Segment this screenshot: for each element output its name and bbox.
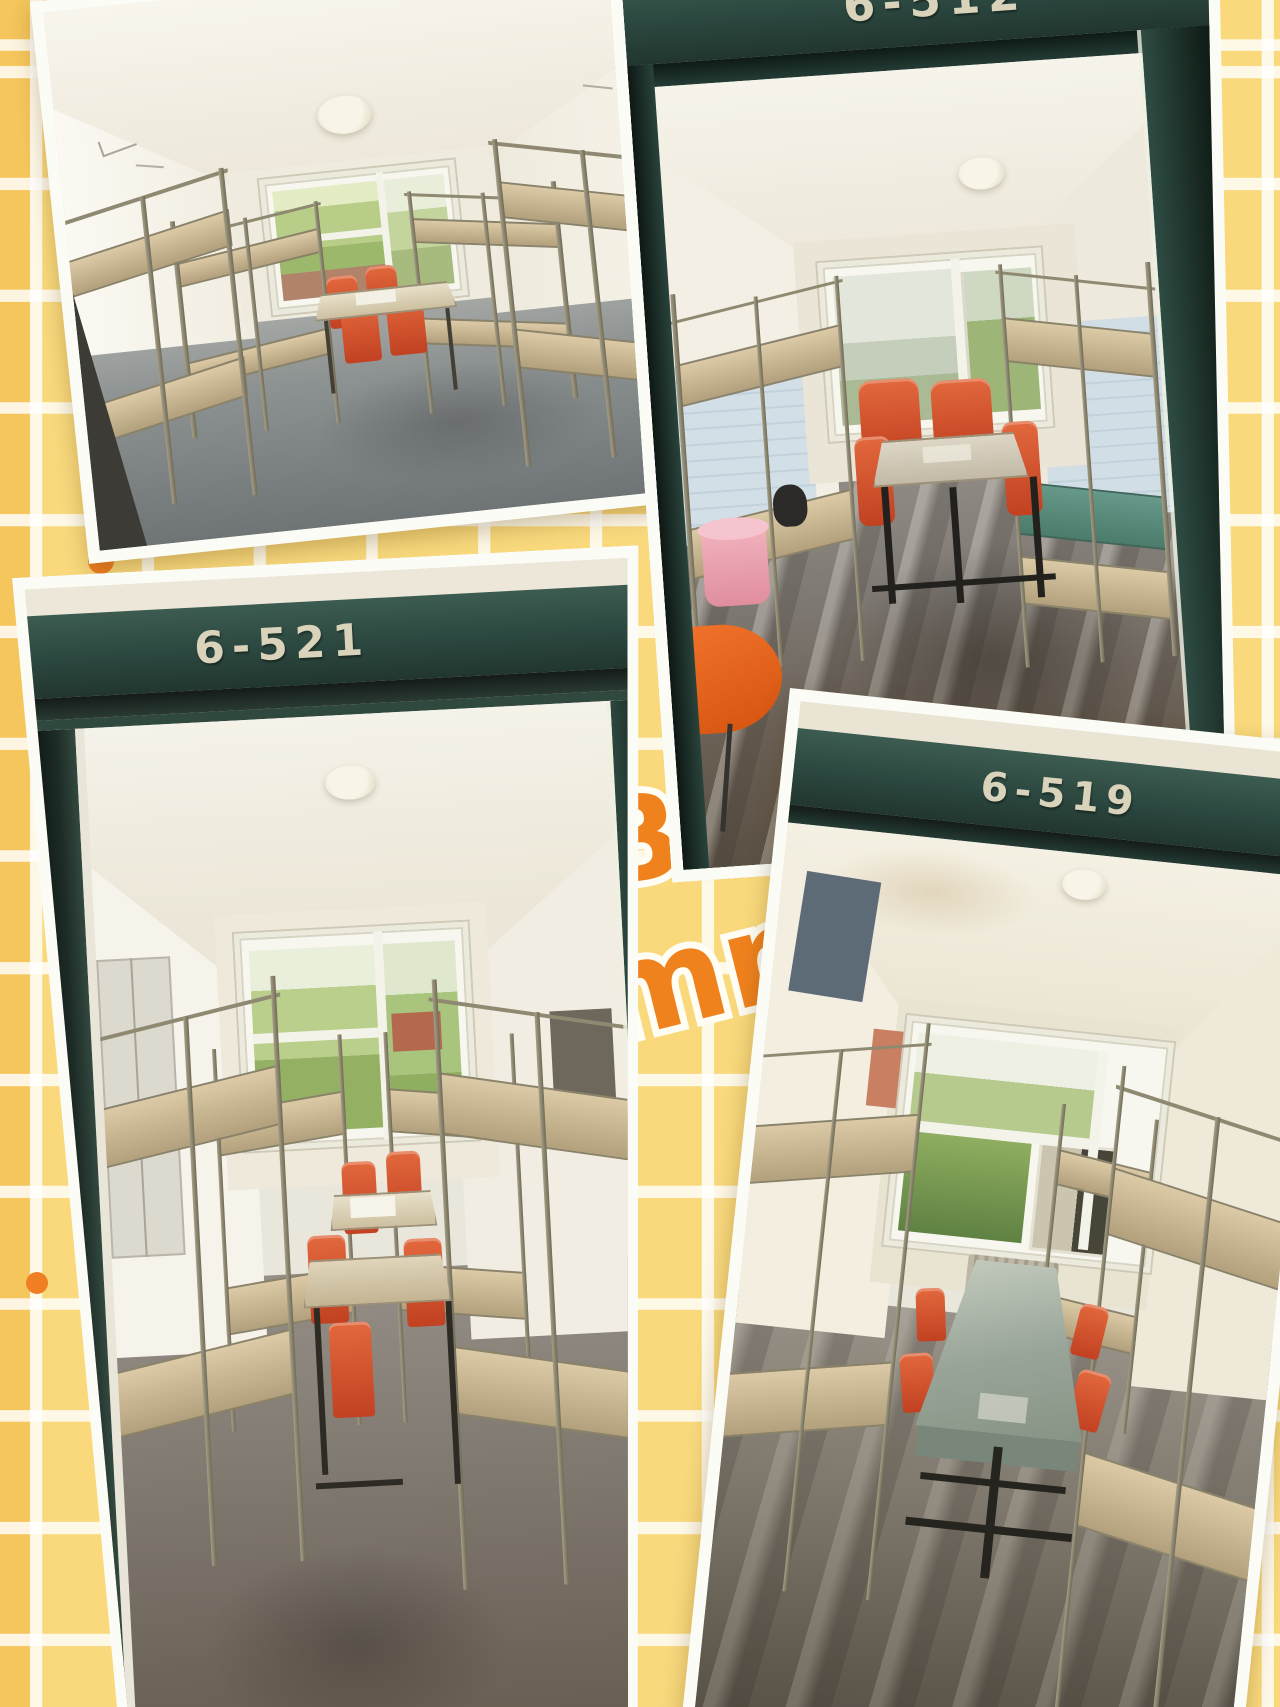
table-smudge bbox=[922, 444, 971, 464]
photo-1-scene bbox=[43, 0, 692, 551]
dorm-room-photo-top-left bbox=[30, 0, 706, 564]
bunk-post bbox=[697, 1023, 761, 1583]
room-number: 6-521 bbox=[193, 618, 371, 671]
table-leg-post bbox=[980, 1447, 1003, 1579]
room-number: 6-519 bbox=[979, 766, 1142, 822]
bunk-rail bbox=[1116, 1084, 1280, 1152]
table-leg bbox=[445, 308, 458, 390]
chair bbox=[329, 1321, 375, 1419]
bench-foot-bar bbox=[872, 573, 1056, 592]
table-and-chairs bbox=[310, 253, 468, 419]
wire-hanger-mark bbox=[136, 153, 165, 169]
backpack bbox=[772, 483, 809, 527]
photo-3-scene: 6-521 bbox=[25, 557, 705, 1707]
chair bbox=[915, 1288, 946, 1342]
desk-leg bbox=[446, 1301, 462, 1484]
table-smudge bbox=[978, 1392, 1028, 1423]
bench-and-table bbox=[850, 368, 1066, 614]
collage-canvas: B B mm mm bbox=[0, 0, 1280, 1707]
bunk-board-top bbox=[1104, 1167, 1280, 1296]
photo-4-scene: 6-519 bbox=[686, 701, 1280, 1707]
wire-hanger-mark bbox=[583, 72, 614, 89]
desk-foot-bar bbox=[316, 1479, 402, 1490]
bunk-bed-left bbox=[666, 275, 869, 681]
decor-dot-lower-left bbox=[26, 1272, 48, 1294]
dorm-room-photo-bottom-left: 6-521 bbox=[12, 545, 718, 1707]
room-number: 6-512 bbox=[806, 0, 1028, 31]
long-table-and-chairs bbox=[891, 1254, 1107, 1600]
near-desk-top bbox=[301, 1253, 452, 1309]
far-desk-paper bbox=[350, 1196, 396, 1218]
bunk-post bbox=[1239, 1105, 1280, 1707]
desk-leg bbox=[314, 1308, 329, 1476]
table-leg bbox=[324, 320, 336, 393]
desks-and-chairs bbox=[288, 1140, 481, 1547]
